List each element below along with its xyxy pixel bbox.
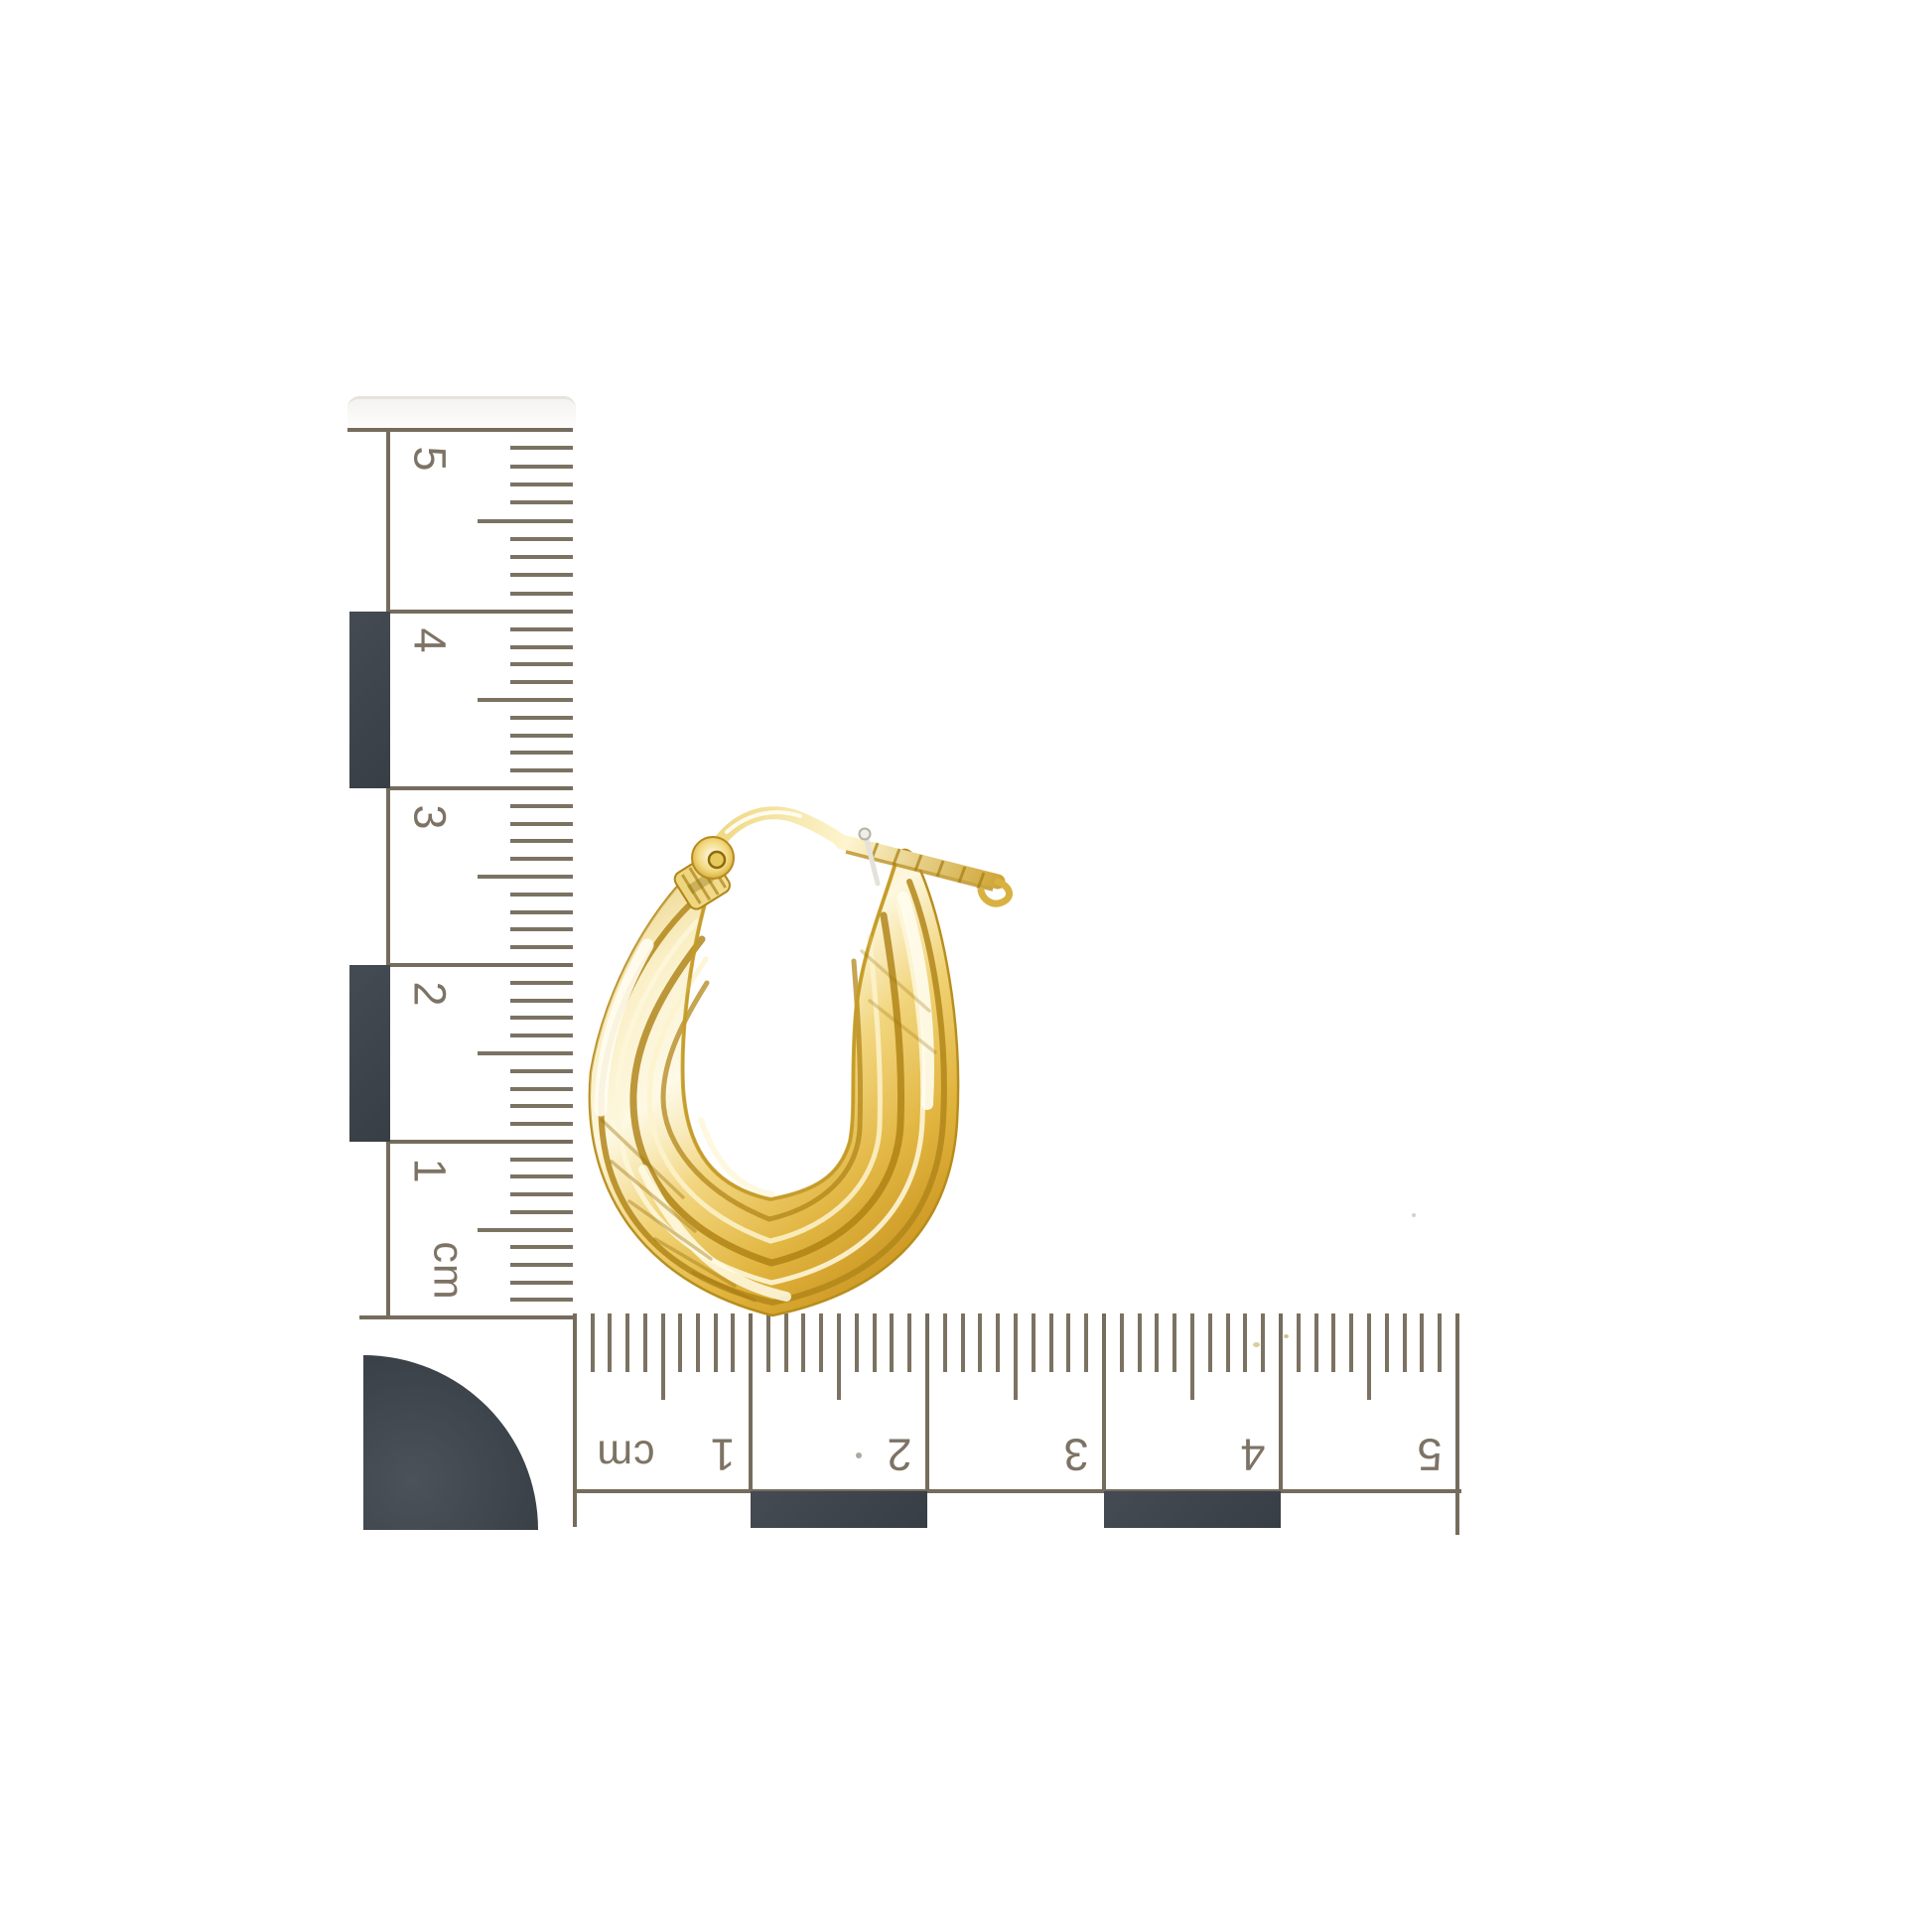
ruler-tick xyxy=(1438,1313,1442,1372)
ruler-tick xyxy=(1385,1313,1389,1372)
ruler-tick xyxy=(510,768,573,772)
ruler-number: 4 xyxy=(408,627,453,652)
ruler-number: 1 xyxy=(710,1433,735,1477)
ruler-tick xyxy=(1155,1313,1159,1372)
ruler-number: 5 xyxy=(1417,1433,1442,1477)
ruler-tick xyxy=(510,627,573,631)
scale-block xyxy=(349,965,390,1142)
ruler-tick xyxy=(1261,1313,1265,1372)
ruler-tick xyxy=(510,645,573,649)
ruler-tick xyxy=(1173,1313,1176,1372)
ruler-tick xyxy=(1190,1313,1194,1400)
ruler-cm-line xyxy=(1279,1313,1283,1491)
ruler-number: 2 xyxy=(887,1433,911,1477)
ruler-tick xyxy=(510,483,573,486)
ruler-tick xyxy=(1120,1313,1124,1372)
scale-block xyxy=(751,1491,927,1528)
ruler-tick xyxy=(1066,1313,1070,1372)
ruler-cm-line xyxy=(388,610,573,614)
ruler-tick xyxy=(1420,1313,1424,1372)
ruler-edge-line xyxy=(386,430,390,1317)
earring-clasp xyxy=(672,812,1010,911)
vertical-ruler-unit-label: cm xyxy=(427,1241,470,1300)
ruler-tick xyxy=(510,446,573,450)
ruler-tick xyxy=(510,500,573,504)
ruler-tick xyxy=(1403,1313,1407,1372)
ruler-tick xyxy=(1226,1313,1230,1372)
ruler-tick xyxy=(510,573,573,577)
ruler-tick xyxy=(1367,1313,1371,1400)
ruler-tick xyxy=(478,698,573,702)
ruler-tick xyxy=(510,592,573,596)
clasp-wire xyxy=(718,813,846,844)
ruler-tick xyxy=(510,537,573,541)
ruler-number: 4 xyxy=(1240,1433,1265,1477)
ruler-tick xyxy=(1331,1313,1335,1372)
ruler-cm-line xyxy=(1455,1313,1459,1535)
catch-pin-ball xyxy=(860,829,871,840)
ruler-tick xyxy=(1208,1313,1212,1372)
ruler-cm-line xyxy=(347,428,573,432)
dust-speck xyxy=(1412,1213,1416,1217)
ruler-tick xyxy=(510,662,573,666)
horizontal-ruler-unit-label: cm xyxy=(596,1434,654,1476)
ruler-number: 1 xyxy=(408,1158,453,1182)
dust-speck xyxy=(1253,1342,1260,1347)
ruler-number: 3 xyxy=(408,804,453,829)
ruler-tick xyxy=(510,680,573,684)
ruler-tick xyxy=(1138,1313,1142,1372)
scale-block xyxy=(1104,1491,1281,1528)
corner-scale-marker xyxy=(363,1355,538,1530)
ruler-tick xyxy=(1049,1313,1053,1372)
ruler-tick xyxy=(510,716,573,720)
ruler-tick xyxy=(510,465,573,469)
scale-block xyxy=(349,612,390,788)
ruler-tick xyxy=(1349,1313,1353,1372)
ruler-number: 2 xyxy=(408,981,453,1006)
ruler-cm-line xyxy=(1102,1313,1106,1491)
ruler-tick xyxy=(510,555,573,559)
ruler-cm-line xyxy=(573,1313,577,1527)
earring-photo xyxy=(536,784,1042,1340)
ruler-tick xyxy=(1314,1313,1318,1372)
ruler-number: 3 xyxy=(1063,1433,1088,1477)
photo-canvas: cm 54321 cm 12345 xyxy=(0,0,1932,1932)
ruler-number: 5 xyxy=(408,446,453,471)
ruler-tick xyxy=(478,519,573,523)
ruler-tick xyxy=(1243,1313,1247,1372)
ruler-baseline xyxy=(575,1489,1461,1493)
dust-speck xyxy=(856,1452,862,1458)
hinge-pivot-hole xyxy=(709,852,725,868)
ruler-tick xyxy=(510,751,573,755)
ruler-tick xyxy=(1297,1313,1301,1372)
ruler-tick xyxy=(510,734,573,738)
dust-speck xyxy=(1284,1334,1289,1338)
ruler-tick xyxy=(1084,1313,1088,1372)
